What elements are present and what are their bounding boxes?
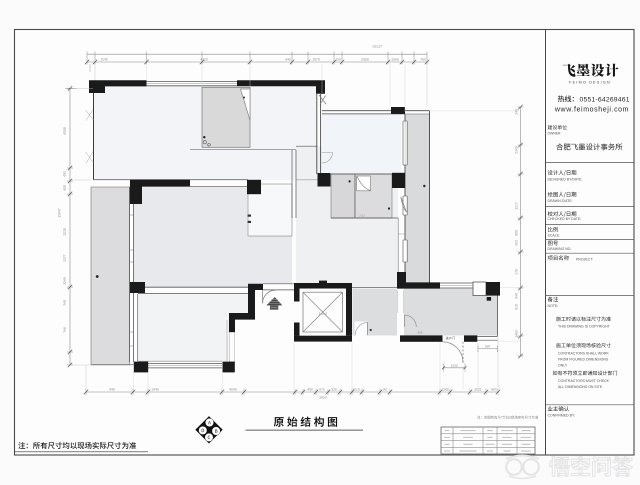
svg-text:DRAWING NO.: DRAWING NO. <box>548 247 572 251</box>
svg-text:ALL DIMENSIONS ON SITE: ALL DIMENSIONS ON SITE <box>558 385 603 389</box>
svg-text:ONLY: ONLY <box>558 363 568 367</box>
svg-text:0551-64269461: 0551-64269461 <box>580 96 630 103</box>
svg-text:CONFIRMED BY:: CONFIRMED BY: <box>548 413 576 417</box>
svg-text:CONTRACTORS MUST CHECK: CONTRACTORS MUST CHECK <box>558 379 610 383</box>
svg-text:CONTRACTORS SHALL WORK: CONTRACTORS SHALL WORK <box>558 351 609 355</box>
svg-text:DRAWN /DATE:: DRAWN /DATE: <box>548 199 573 203</box>
svg-text:FEIMO DESIGN: FEIMO DESIGN <box>569 80 611 84</box>
svg-text:NOTE:: NOTE: <box>548 304 559 308</box>
svg-text:www.feimosheji.com: www.feimosheji.com <box>554 106 629 113</box>
svg-text:CHECKED BY DATE:: CHECKED BY DATE: <box>548 217 582 221</box>
svg-text:OWNER: OWNER <box>548 131 562 135</box>
svg-text:PROJECT:: PROJECT: <box>576 257 593 261</box>
svg-text:THIS DRAWING IS COPYRIGHT: THIS DRAWING IS COPYRIGHT <box>558 325 611 329</box>
svg-text:FROM FIGURED DIMENSIONS: FROM FIGURED DIMENSIONS <box>558 357 609 361</box>
svg-text:DESIGNED BY/DATE:: DESIGNED BY/DATE: <box>548 178 583 182</box>
svg-text:SCALE:: SCALE: <box>548 234 560 238</box>
